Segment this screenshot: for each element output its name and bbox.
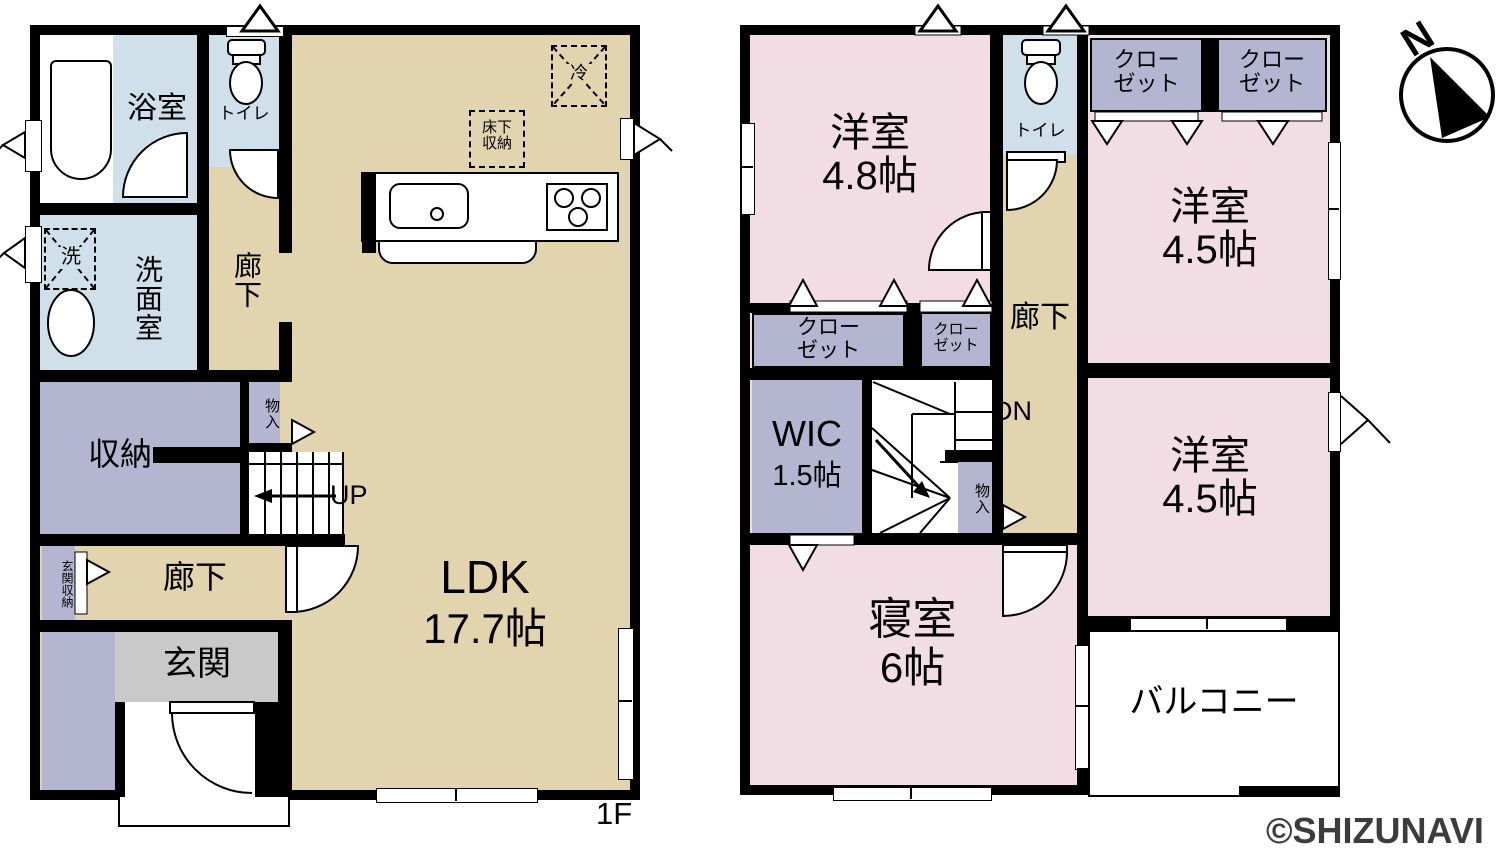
floorplan-canvas: 浴室 トイレ 廊下 洗 洗面室 収納 物入 xyxy=(0,0,1499,860)
compass-north-icon xyxy=(0,0,1499,860)
watermark: ©SHIZUNAVI xyxy=(1266,810,1484,852)
